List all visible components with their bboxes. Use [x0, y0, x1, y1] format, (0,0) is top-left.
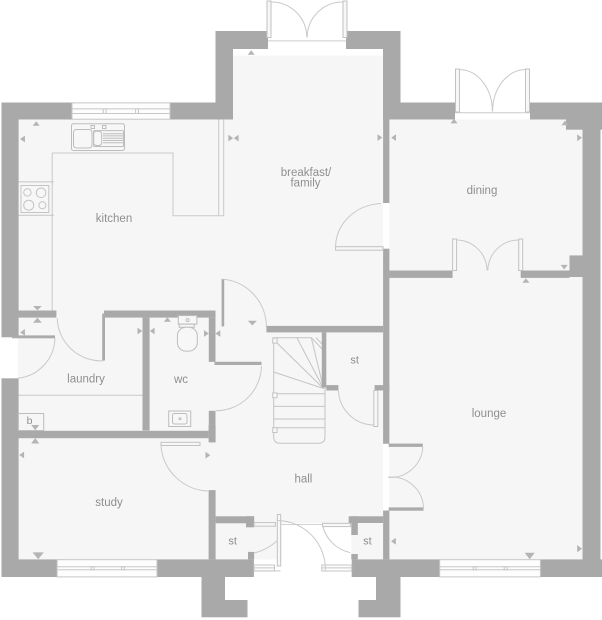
- svg-text:st: st: [350, 355, 359, 367]
- svg-text:laundry: laundry: [67, 374, 105, 386]
- svg-text:kitchen: kitchen: [96, 213, 132, 225]
- svg-text:lounge: lounge: [472, 408, 507, 420]
- svg-text:wc: wc: [173, 374, 188, 386]
- svg-text:study: study: [95, 497, 123, 509]
- svg-text:st: st: [228, 535, 237, 547]
- svg-text:st: st: [363, 535, 372, 547]
- svg-text:hall: hall: [294, 474, 312, 486]
- svg-text:family: family: [290, 178, 320, 190]
- svg-text:dining: dining: [467, 185, 498, 197]
